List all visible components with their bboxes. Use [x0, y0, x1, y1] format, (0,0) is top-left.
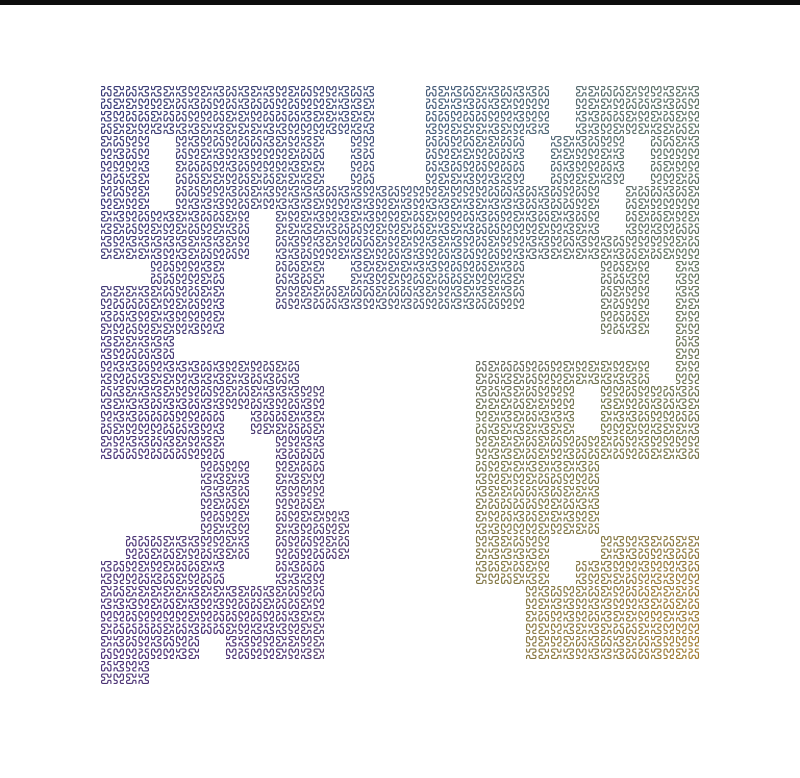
curve-motif-tile	[289, 99, 298, 108]
curve-motif-tile	[439, 162, 448, 171]
curve-motif-tile	[452, 162, 461, 171]
curve-motif-tile	[514, 237, 523, 246]
curve-motif-tile	[352, 274, 361, 283]
curve-motif-tile	[539, 487, 548, 496]
curve-motif-tile	[552, 137, 561, 146]
curve-motif-tile	[614, 87, 623, 96]
curve-motif-tile	[539, 462, 548, 471]
curve-motif-tile	[502, 549, 511, 558]
curve-motif-tile	[664, 412, 673, 421]
curve-motif-tile	[302, 187, 311, 196]
curve-motif-tile	[202, 499, 211, 508]
curve-motif-tile	[502, 362, 511, 371]
curve-motif-tile	[202, 549, 211, 558]
curve-motif-tile	[552, 412, 561, 421]
curve-motif-tile	[289, 124, 298, 133]
curve-motif-tile	[664, 437, 673, 446]
curve-motif-tile	[564, 224, 573, 233]
curve-motif-tile	[102, 374, 111, 383]
curve-motif-tile	[514, 212, 523, 221]
curve-motif-tile	[189, 174, 198, 183]
curve-motif-tile	[314, 124, 323, 133]
curve-motif-tile	[364, 299, 373, 308]
curve-motif-tile	[664, 212, 673, 221]
curve-motif-tile	[302, 524, 311, 533]
curve-motif-tile	[189, 87, 198, 96]
curve-motif-tile	[139, 649, 148, 658]
curve-motif-tile	[689, 374, 698, 383]
curve-motif-tile	[627, 124, 636, 133]
curve-motif-tile	[377, 224, 386, 233]
curve-motif-tile	[352, 224, 361, 233]
curve-motif-tile	[577, 624, 586, 633]
curve-motif-tile	[177, 412, 186, 421]
curve-motif-tile	[152, 262, 161, 271]
curve-motif-tile	[514, 99, 523, 108]
curve-motif-tile	[127, 537, 136, 546]
curve-motif-tile	[564, 162, 573, 171]
curve-motif-tile	[477, 224, 486, 233]
curve-motif-tile	[664, 574, 673, 583]
curve-motif-tile	[364, 149, 373, 158]
curve-motif-tile	[177, 374, 186, 383]
curve-motif-tile	[427, 124, 436, 133]
curve-motif-tile	[314, 462, 323, 471]
curve-motif-tile	[239, 537, 248, 546]
curve-motif-tile	[177, 274, 186, 283]
curve-motif-tile	[289, 637, 298, 646]
curve-motif-tile	[589, 374, 598, 383]
curve-motif-tile	[152, 649, 161, 658]
curve-motif-tile	[639, 299, 648, 308]
curve-motif-tile	[252, 199, 261, 208]
curve-motif-tile	[489, 274, 498, 283]
curve-motif-tile	[489, 212, 498, 221]
curve-motif-tile	[577, 99, 586, 108]
curve-motif-tile	[489, 537, 498, 546]
curve-motif-tile	[689, 537, 698, 546]
curve-motif-tile	[577, 249, 586, 258]
curve-motif-tile	[164, 412, 173, 421]
curve-motif-tile	[252, 137, 261, 146]
curve-motif-tile	[102, 199, 111, 208]
curve-motif-tile	[364, 137, 373, 146]
curve-motif-tile	[289, 437, 298, 446]
curve-motif-tile	[227, 174, 236, 183]
curve-motif-tile	[114, 374, 123, 383]
curve-motif-tile	[539, 412, 548, 421]
curve-motif-tile	[589, 487, 598, 496]
curve-motif-tile	[489, 499, 498, 508]
curve-motif-tile	[289, 462, 298, 471]
curve-motif-tile	[639, 624, 648, 633]
curve-motif-tile	[102, 299, 111, 308]
curve-motif-tile	[127, 387, 136, 396]
curve-motif-tile	[202, 299, 211, 308]
curve-motif-tile	[652, 562, 661, 571]
curve-motif-tile	[352, 212, 361, 221]
curve-motif-tile	[202, 562, 211, 571]
curve-motif-tile	[552, 362, 561, 371]
curve-motif-tile	[652, 124, 661, 133]
curve-motif-tile	[164, 599, 173, 608]
curve-motif-tile	[164, 399, 173, 408]
curve-motif-tile	[414, 262, 423, 271]
curve-motif-tile	[302, 174, 311, 183]
curve-motif-tile	[464, 124, 473, 133]
curve-motif-tile	[189, 212, 198, 221]
curve-motif-tile	[639, 412, 648, 421]
curve-motif-tile	[239, 637, 248, 646]
curve-motif-tile	[214, 437, 223, 446]
curve-motif-tile	[114, 337, 123, 346]
curve-motif-tile	[227, 87, 236, 96]
curve-motif-tile	[252, 187, 261, 196]
curve-motif-tile	[452, 299, 461, 308]
curve-motif-tile	[689, 237, 698, 246]
curve-motif-tile	[202, 274, 211, 283]
curve-motif-tile	[102, 349, 111, 358]
curve-motif-tile	[652, 399, 661, 408]
curve-motif-tile	[139, 199, 148, 208]
curve-motif-tile	[102, 649, 111, 658]
curve-motif-tile	[652, 449, 661, 458]
curve-motif-tile	[589, 87, 598, 96]
curve-motif-tile	[277, 362, 286, 371]
curve-motif-tile	[677, 612, 686, 621]
curve-motif-tile	[152, 574, 161, 583]
curve-motif-tile	[302, 412, 311, 421]
curve-motif-tile	[477, 574, 486, 583]
curve-motif-tile	[114, 137, 123, 146]
curve-motif-tile	[177, 262, 186, 271]
curve-motif-tile	[264, 387, 273, 396]
curve-motif-tile	[264, 624, 273, 633]
curve-motif-tile	[239, 462, 248, 471]
curve-motif-tile	[152, 287, 161, 296]
curve-motif-tile	[102, 137, 111, 146]
curve-motif-tile	[264, 187, 273, 196]
curve-motif-tile	[664, 187, 673, 196]
curve-motif-tile	[339, 299, 348, 308]
curve-motif-tile	[327, 187, 336, 196]
curve-motif-tile	[677, 112, 686, 121]
curve-motif-tile	[402, 262, 411, 271]
curve-motif-tile	[577, 149, 586, 158]
curve-motif-tile	[152, 624, 161, 633]
curve-motif-tile	[314, 199, 323, 208]
curve-motif-tile	[627, 187, 636, 196]
curve-motif-tile	[177, 649, 186, 658]
curve-motif-tile	[139, 162, 148, 171]
curve-motif-tile	[277, 399, 286, 408]
curve-motif-tile	[277, 524, 286, 533]
curve-motif-tile	[527, 449, 536, 458]
curve-motif-tile	[214, 187, 223, 196]
curve-motif-tile	[539, 562, 548, 571]
curve-motif-tile	[427, 199, 436, 208]
curve-motif-tile	[414, 237, 423, 246]
curve-motif-tile	[239, 512, 248, 521]
curve-motif-tile	[214, 487, 223, 496]
curve-motif-tile	[127, 599, 136, 608]
curve-motif-tile	[652, 137, 661, 146]
curve-motif-tile	[277, 587, 286, 596]
curve-motif-tile	[552, 587, 561, 596]
curve-motif-tile	[152, 87, 161, 96]
curve-motif-tile	[439, 199, 448, 208]
curve-motif-tile	[202, 362, 211, 371]
curve-motif-tile	[177, 299, 186, 308]
curve-motif-tile	[527, 424, 536, 433]
curve-motif-tile	[627, 224, 636, 233]
curve-motif-tile	[527, 574, 536, 583]
curve-motif-tile	[464, 174, 473, 183]
curve-motif-tile	[139, 437, 148, 446]
curve-motif-tile	[639, 599, 648, 608]
curve-motif-tile	[377, 262, 386, 271]
curve-motif-tile	[364, 124, 373, 133]
curve-motif-tile	[677, 249, 686, 258]
curve-motif-tile	[314, 274, 323, 283]
curve-motif-tile	[102, 574, 111, 583]
curve-motif-tile	[527, 99, 536, 108]
curve-motif-tile	[502, 237, 511, 246]
curve-motif-tile	[514, 299, 523, 308]
curve-motif-tile	[227, 224, 236, 233]
curve-motif-tile	[127, 249, 136, 258]
curve-motif-tile	[689, 137, 698, 146]
curve-motif-tile	[602, 262, 611, 271]
curve-motif-tile	[177, 612, 186, 621]
curve-motif-tile	[627, 287, 636, 296]
curve-motif-tile	[652, 387, 661, 396]
curve-motif-tile	[327, 524, 336, 533]
curve-motif-tile	[677, 324, 686, 333]
curve-motif-tile	[189, 112, 198, 121]
curve-motif-tile	[289, 512, 298, 521]
curve-motif-tile	[114, 612, 123, 621]
curve-motif-tile	[289, 624, 298, 633]
curve-motif-tile	[239, 474, 248, 483]
curve-motif-tile	[189, 437, 198, 446]
curve-motif-tile	[477, 462, 486, 471]
curve-motif-tile	[239, 124, 248, 133]
curve-motif-tile	[502, 199, 511, 208]
curve-motif-tile	[514, 537, 523, 546]
curve-motif-tile	[352, 87, 361, 96]
curve-motif-tile	[277, 649, 286, 658]
curve-motif-tile	[664, 387, 673, 396]
curve-motif-tile	[214, 587, 223, 596]
curve-motif-tile	[114, 312, 123, 321]
curve-motif-tile	[239, 137, 248, 146]
curve-motif-tile	[589, 249, 598, 258]
curve-motif-tile	[464, 299, 473, 308]
curve-motif-tile	[214, 249, 223, 258]
curve-motif-tile	[677, 374, 686, 383]
curve-motif-tile	[152, 237, 161, 246]
curve-motif-tile	[614, 362, 623, 371]
curve-motif-tile	[614, 537, 623, 546]
curve-motif-tile	[527, 199, 536, 208]
curve-motif-tile	[502, 137, 511, 146]
curve-motif-tile	[639, 262, 648, 271]
curve-motif-tile	[627, 212, 636, 221]
curve-motif-tile	[439, 299, 448, 308]
curve-motif-tile	[677, 349, 686, 358]
curve-motif-tile	[102, 599, 111, 608]
curve-motif-tile	[139, 624, 148, 633]
curve-motif-tile	[302, 262, 311, 271]
curve-motif-tile	[214, 474, 223, 483]
curve-motif-tile	[177, 637, 186, 646]
curve-motif-tile	[102, 587, 111, 596]
curve-motif-tile	[114, 449, 123, 458]
curve-motif-tile	[152, 112, 161, 121]
curve-motif-tile	[327, 249, 336, 258]
curve-motif-tile	[202, 612, 211, 621]
curve-motif-tile	[127, 162, 136, 171]
curve-motif-tile	[502, 537, 511, 546]
curve-motif-tile	[477, 112, 486, 121]
curve-motif-tile	[539, 87, 548, 96]
curve-motif-tile	[452, 187, 461, 196]
curve-motif-tile	[164, 237, 173, 246]
curve-motif-tile	[514, 499, 523, 508]
curve-motif-tile	[389, 187, 398, 196]
curve-motif-tile	[477, 262, 486, 271]
curve-motif-tile	[202, 599, 211, 608]
curve-motif-tile	[552, 512, 561, 521]
curve-motif-tile	[127, 412, 136, 421]
curve-motif-tile	[489, 137, 498, 146]
curve-motif-tile	[352, 124, 361, 133]
curve-motif-tile	[639, 112, 648, 121]
curve-motif-tile	[139, 224, 148, 233]
curve-motif-tile	[339, 224, 348, 233]
curve-motif-tile	[239, 162, 248, 171]
curve-motif-tile	[164, 424, 173, 433]
curve-motif-tile	[389, 237, 398, 246]
curve-motif-tile	[602, 87, 611, 96]
curve-motif-tile	[627, 562, 636, 571]
curve-motif-tile	[614, 574, 623, 583]
curve-motif-tile	[414, 274, 423, 283]
curve-motif-tile	[527, 612, 536, 621]
curve-motif-tile	[177, 174, 186, 183]
curve-motif-tile	[352, 199, 361, 208]
curve-motif-tile	[339, 124, 348, 133]
curve-motif-tile	[514, 112, 523, 121]
curve-motif-tile	[614, 374, 623, 383]
curve-motif-tile	[552, 212, 561, 221]
curve-motif-tile	[127, 574, 136, 583]
curve-motif-tile	[127, 437, 136, 446]
curve-motif-tile	[214, 537, 223, 546]
curve-motif-tile	[577, 562, 586, 571]
curve-motif-tile	[464, 87, 473, 96]
curve-motif-tile	[114, 637, 123, 646]
curve-motif-tile	[264, 162, 273, 171]
curve-motif-tile	[602, 324, 611, 333]
curve-motif-tile	[452, 199, 461, 208]
curve-motif-tile	[102, 212, 111, 221]
curve-motif-tile	[689, 399, 698, 408]
curve-motif-tile	[489, 224, 498, 233]
curve-motif-tile	[627, 412, 636, 421]
curve-motif-tile	[614, 412, 623, 421]
curve-motif-tile	[527, 462, 536, 471]
curve-motif-tile	[302, 287, 311, 296]
curve-motif-tile	[477, 212, 486, 221]
curve-motif-tile	[139, 299, 148, 308]
curve-motif-tile	[389, 212, 398, 221]
curve-motif-tile	[302, 124, 311, 133]
curve-motif-tile	[552, 524, 561, 533]
curve-motif-tile	[652, 237, 661, 246]
curve-motif-tile	[302, 449, 311, 458]
curve-motif-tile	[639, 437, 648, 446]
curve-motif-tile	[639, 224, 648, 233]
curve-motif-tile	[402, 224, 411, 233]
curve-motif-tile	[227, 387, 236, 396]
curve-motif-tile	[552, 162, 561, 171]
curve-motif-tile	[564, 424, 573, 433]
curve-motif-tile	[427, 212, 436, 221]
curve-motif-tile	[327, 537, 336, 546]
curve-motif-tile	[102, 224, 111, 233]
curve-motif-tile	[139, 399, 148, 408]
curve-motif-tile	[552, 462, 561, 471]
curve-motif-tile	[164, 362, 173, 371]
curve-motif-tile	[264, 649, 273, 658]
curve-motif-tile	[639, 199, 648, 208]
curve-motif-tile	[602, 412, 611, 421]
curve-motif-tile	[102, 387, 111, 396]
curve-motif-tile	[652, 87, 661, 96]
curve-motif-tile	[564, 237, 573, 246]
curve-motif-tile	[652, 587, 661, 596]
curve-motif-tile	[214, 324, 223, 333]
curve-motif-tile	[427, 262, 436, 271]
curve-motif-tile	[539, 362, 548, 371]
curve-motif-tile	[214, 387, 223, 396]
curve-motif-tile	[127, 112, 136, 121]
curve-motif-tile	[277, 624, 286, 633]
curve-motif-tile	[602, 624, 611, 633]
curve-motif-tile	[602, 124, 611, 133]
curve-motif-tile	[639, 124, 648, 133]
curve-motif-tile	[552, 174, 561, 183]
curve-motif-tile	[477, 449, 486, 458]
curve-motif-tile	[677, 337, 686, 346]
curve-motif-tile	[539, 249, 548, 258]
curve-motif-tile	[602, 137, 611, 146]
curve-motif-tile	[477, 524, 486, 533]
curve-motif-tile	[664, 237, 673, 246]
curve-motif-tile	[139, 337, 148, 346]
curve-motif-tile	[577, 499, 586, 508]
curve-motif-tile	[289, 499, 298, 508]
curve-motif-tile	[452, 99, 461, 108]
curve-motif-tile	[577, 524, 586, 533]
curve-motif-tile	[239, 224, 248, 233]
curve-motif-tile	[689, 287, 698, 296]
curve-motif-tile	[527, 412, 536, 421]
curve-motif-tile	[677, 87, 686, 96]
curve-motif-tile	[102, 249, 111, 258]
